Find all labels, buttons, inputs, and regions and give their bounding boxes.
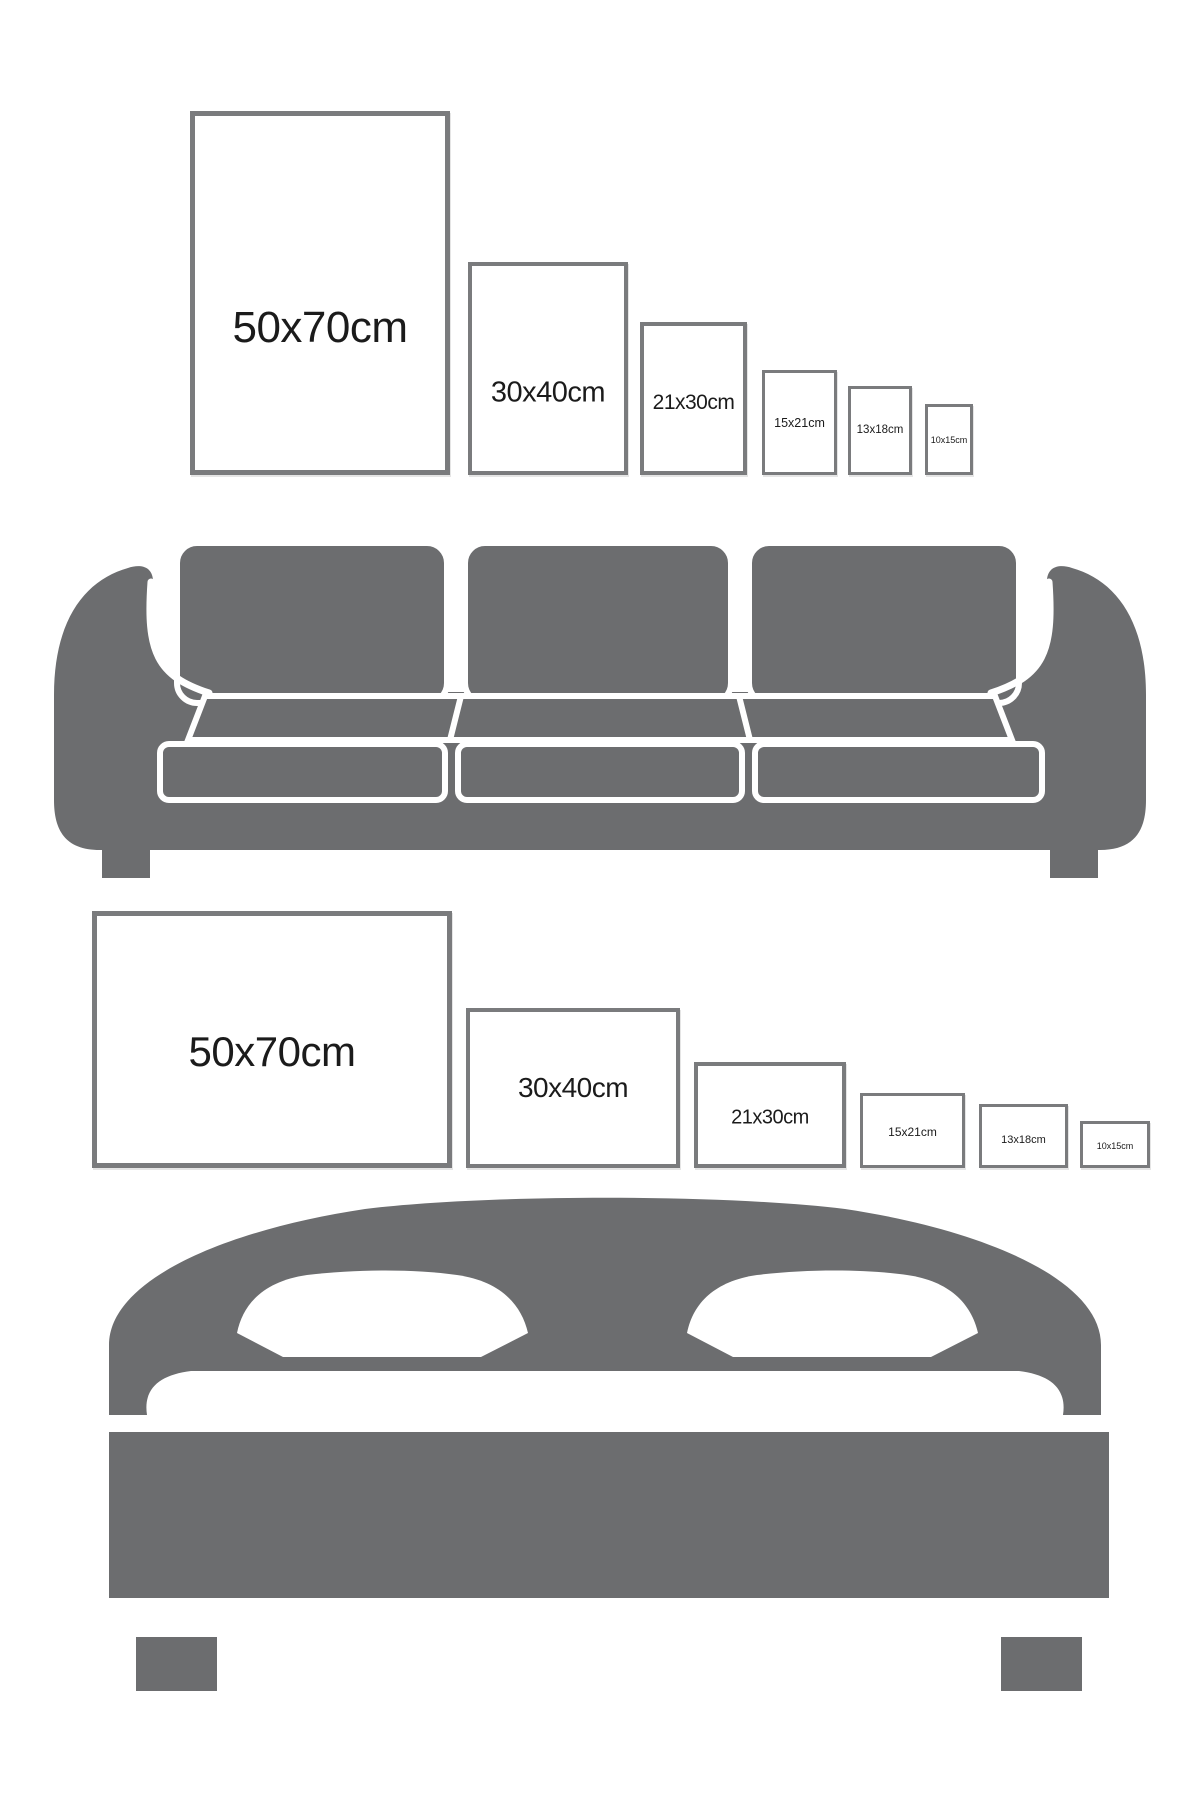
- frame-size-label: 15x21cm: [888, 1125, 937, 1139]
- sofa-seat-deck: [188, 696, 1012, 740]
- bed-foot: [1001, 1637, 1082, 1691]
- frame-size-label: 13x18cm: [1001, 1134, 1046, 1146]
- frame-size-label: 30x40cm: [518, 1072, 628, 1104]
- frame-size-label: 50x70cm: [189, 1028, 356, 1076]
- sofa-back-cushion: [749, 543, 1019, 703]
- frame-10x15-portrait: 10x15cm: [925, 404, 973, 475]
- frame-size-label: 30x40cm: [491, 377, 605, 410]
- frame-30x40-landscape: 30x40cm: [466, 1008, 680, 1168]
- frame-size-label: 10x15cm: [931, 435, 968, 445]
- bed-pillow-cutout: [687, 1271, 978, 1358]
- frame-size-label: 21x30cm: [731, 1106, 809, 1129]
- sofa-back-cushion: [177, 543, 447, 703]
- frame-21x30-landscape: 21x30cm: [694, 1062, 846, 1168]
- frame-size-label: 15x21cm: [774, 416, 825, 430]
- sofa-seat-cushion: [755, 744, 1042, 800]
- sofa-back-cushion: [465, 543, 731, 703]
- frame-size-label: 13x18cm: [857, 424, 904, 436]
- bed-foot: [136, 1637, 217, 1691]
- frame-15x21-landscape: 15x21cm: [860, 1093, 965, 1168]
- frame-30x40-portrait: 30x40cm: [468, 262, 628, 475]
- frame-size-label: 10x15cm: [1097, 1141, 1134, 1151]
- frame-10x15-landscape: 10x15cm: [1080, 1121, 1150, 1168]
- sofa-seat-cushion: [160, 744, 445, 800]
- frame-size-label: 21x30cm: [653, 391, 735, 415]
- sofa-seat-cushion: [458, 744, 742, 800]
- sofa-foot: [102, 850, 150, 878]
- bed-base: [109, 1432, 1109, 1598]
- sofa-icon: [40, 480, 1160, 885]
- frame-50x70-landscape: 50x70cm: [92, 911, 452, 1168]
- bed-pillow-cutout: [237, 1271, 528, 1358]
- frame-13x18-landscape: 13x18cm: [979, 1104, 1068, 1168]
- frame-50x70-portrait: 50x70cm: [190, 111, 450, 475]
- frame-13x18-portrait: 13x18cm: [848, 386, 912, 475]
- sofa-foot: [1050, 850, 1098, 878]
- frame-15x21-portrait: 15x21cm: [762, 370, 837, 475]
- frame-21x30-portrait: 21x30cm: [640, 322, 747, 475]
- frame-size-label: 50x70cm: [232, 303, 407, 353]
- bed-icon: [85, 1185, 1125, 1695]
